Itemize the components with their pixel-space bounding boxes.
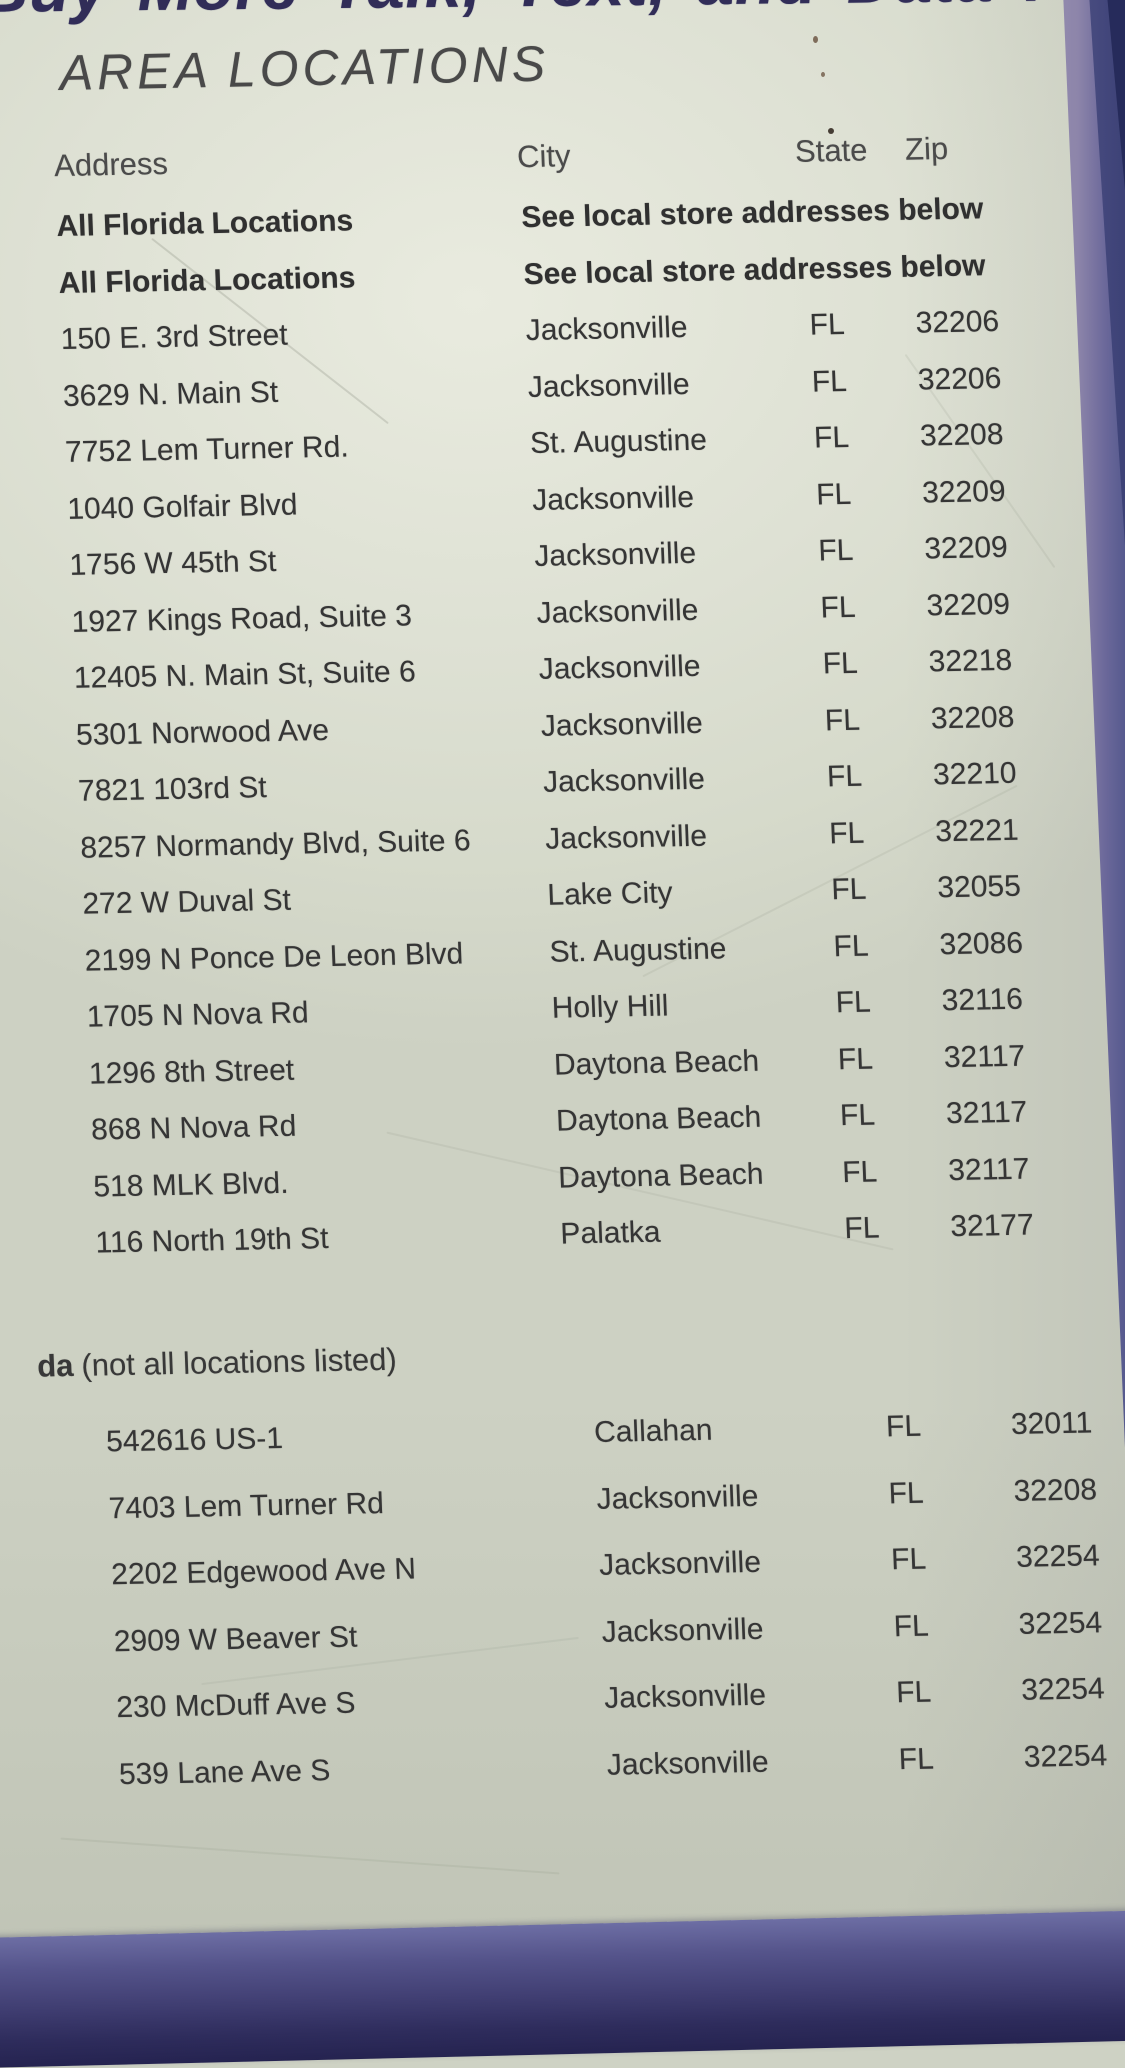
table-row: 2909 W Beaver St Jacksonville FL 32254 [53,1604,1125,1682]
row-state: FL [813,421,849,456]
table-row: 230 McDuff Ave S Jacksonville FL 32254 [56,1671,1125,1749]
row-zip: 32055 [937,870,1022,906]
binder-bottom-band [0,1910,1125,2068]
row-address: 1705 N Nova Rd [86,996,309,1034]
row-city: Jacksonville [606,1745,769,1782]
row-city: Jacksonville [599,1546,762,1583]
row-city: Lake City [547,876,673,912]
row-address: 12405 N. Main St, Suite 6 [73,655,416,696]
row-state: FL [893,1609,929,1644]
row-city: Jacksonville [534,537,697,574]
row-address: 230 McDuff Ave S [116,1687,356,1726]
row-address: 2909 W Beaver St [113,1620,358,1659]
row-state: FL [837,1042,873,1077]
row-state: FL [831,873,867,908]
row-zip: 32208 [930,700,1015,736]
row-address: 1296 8th Street [88,1053,294,1091]
sheet-content: Buy More Talk, Text, and Data ! AREA LOC… [0,0,1125,2000]
row-zip: 32210 [932,757,1017,793]
row-city: Daytona Beach [558,1157,764,1195]
row-address: 2202 Edgewood Ave N [111,1552,417,1592]
section-2-heading-prefix: da [37,1348,75,1384]
row-state: FL [811,364,847,399]
table-row: 2202 Edgewood Ave N Jacksonville FL 3225… [51,1538,1125,1616]
row-zip: 32221 [935,813,1020,849]
column-header-city: City [516,138,571,175]
row-state: FL [822,647,858,682]
row-city: St. Augustine [549,932,727,969]
row-city: Jacksonville [527,367,690,404]
row-city: Jacksonville [601,1612,764,1649]
row-address: 116 North 19th St [95,1222,329,1260]
row-zip: 32117 [948,1152,1030,1188]
table-row: 539 Lane Ave S Jacksonville FL 32254 [58,1737,1125,1815]
row-zip: 32206 [915,305,1000,341]
column-header-zip: Zip [904,131,948,168]
row-zip: 32086 [939,926,1024,962]
row-state: FL [844,1211,880,1246]
row-state: FL [898,1742,934,1777]
row-state: FL [890,1543,926,1578]
row-city: Jacksonville [596,1479,759,1516]
row-address: 272 W Duval St [82,884,292,922]
row-zip: 32209 [922,474,1007,510]
row-address: 1756 W 45th St [69,545,277,583]
clipped-promo-headline: Buy More Talk, Text, and Data ! [0,0,1047,27]
row-state: FL [896,1676,932,1711]
row-zip: 32254 [1015,1539,1100,1575]
row-address: 150 E. 3rd Street [60,319,288,357]
row-address: 539 Lane Ave S [118,1754,331,1792]
column-header-state: State [794,132,868,169]
row-state: FL [829,816,865,851]
row-state: FL [826,760,862,795]
row-address: 7403 Lem Turner Rd [108,1487,384,1526]
row-zip: 32208 [1013,1473,1098,1509]
section-2-heading-rest: (not all locations listed) [81,1342,398,1383]
row-address: 5301 Norwood Ave [75,713,329,752]
row-address: 518 MLK Blvd. [93,1166,289,1204]
row-city: Palatka [560,1216,661,1252]
row-zip: 32254 [1018,1606,1103,1642]
row-city: Jacksonville [540,706,703,743]
row-city: Jacksonville [542,763,705,800]
row-state: FL [809,308,845,343]
row-address: All Florida Locations [56,204,354,244]
row-address: 542616 US-1 [106,1422,284,1459]
page-title: AREA LOCATIONS [58,35,550,102]
row-state: FL [818,534,854,569]
row-city: Jacksonville [604,1679,767,1716]
row-city: Daytona Beach [555,1101,761,1139]
row-zip: 32218 [928,644,1013,680]
row-state: FL [839,1099,875,1134]
section-2-heading: da(not all locations listed) [37,1342,398,1385]
row-address: 1040 Golfair Blvd [67,488,298,526]
row-city: St. Augustine [529,424,707,461]
column-header-address: Address [53,146,168,184]
table-row: 542616 US-1 Callahan FL 32011 [46,1405,1125,1483]
row-address: 1927 Kings Road, Suite 3 [71,599,412,640]
row-zip: 32254 [1023,1739,1108,1775]
row-zip: 32209 [926,587,1011,623]
row-state: FL [820,590,856,625]
row-address: 8257 Normandy Blvd, Suite 6 [80,824,471,865]
row-city: Jacksonville [538,650,701,687]
row-zip: 32011 [1010,1406,1092,1442]
row-city: Holly Hill [551,989,669,1025]
row-address: 7821 103rd St [78,771,268,809]
row-city: Daytona Beach [553,1044,759,1082]
row-state: FL [824,703,860,738]
row-address: 3629 N. Main St [62,375,278,413]
row-city: Jacksonville [525,311,688,348]
row-zip: 32117 [943,1039,1025,1075]
row-city: Jacksonville [536,593,699,630]
row-state: FL [816,477,852,512]
row-zip: 32116 [941,983,1023,1019]
row-city: Jacksonville [545,819,708,856]
row-zip: 32209 [924,531,1009,567]
row-address: All Florida Locations [58,261,356,301]
row-zip: 32177 [950,1208,1035,1244]
row-city: Jacksonville [532,480,695,517]
row-state: FL [888,1476,924,1511]
row-state: FL [842,1155,878,1190]
row-address: 7752 Lem Turner Rd. [65,431,350,470]
row-state: FL [885,1410,921,1445]
row-zip: 32208 [919,418,1004,454]
row-address: 2199 N Ponce De Leon Blvd [84,937,464,978]
row-zip: 32254 [1021,1672,1106,1708]
row-city: See local store addresses below [521,192,984,235]
row-zip: 32117 [945,1096,1027,1132]
table-row: 7403 Lem Turner Rd Jacksonville FL 32208 [48,1471,1125,1549]
row-state: FL [835,986,871,1021]
row-address: 868 N Nova Rd [91,1110,297,1148]
row-state: FL [833,929,869,964]
row-city: Callahan [593,1414,713,1450]
row-zip: 32206 [917,361,1002,397]
